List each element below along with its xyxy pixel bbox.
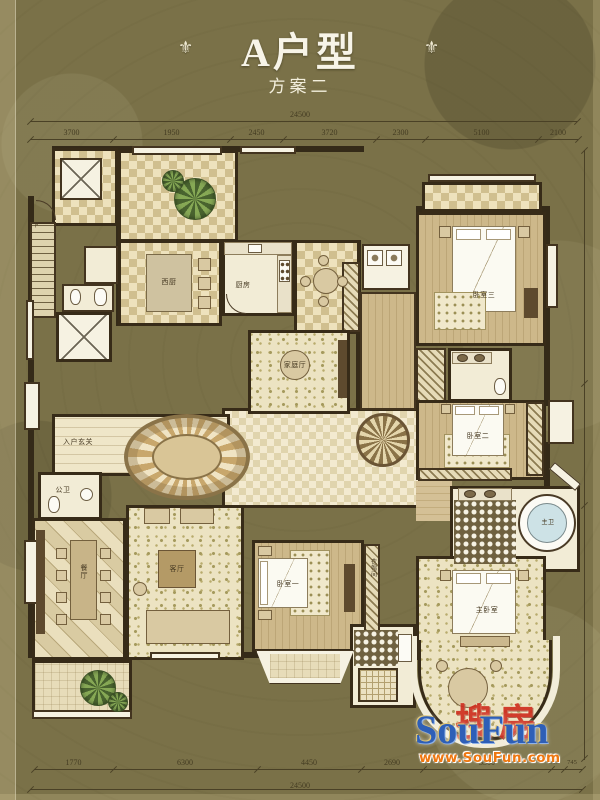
pillow [479,406,499,415]
window-strip [26,300,34,360]
nightstand [258,610,272,620]
right-border-strip [593,0,600,800]
watermark-url: www.SouFun.com [419,750,561,766]
room-label-family-room: 家庭厅 [284,361,307,369]
room-label-master-bedroom: 主卧室 [476,606,499,614]
plant-icon [162,170,184,192]
bedroom3-terrace [422,182,542,212]
bench [524,288,538,318]
master-hall [416,481,452,521]
pillow [260,561,268,605]
pillow [486,573,511,584]
dim-tick [574,118,581,125]
chair [100,548,111,559]
bath-mosaic-floor [354,630,398,666]
closet [416,348,446,402]
fleur-ornament-right-icon: ⚜ [424,38,439,58]
chair [100,570,111,581]
washer-icon [386,250,402,266]
side-table [133,582,147,596]
room-label-kitchen: 厨房 [236,281,251,289]
dim-bottom-total: 24500 [270,781,330,790]
dim-right-line [584,150,585,760]
stool [198,258,211,271]
nightstand [258,546,272,556]
watermark-en-logo: SouFun [415,706,548,753]
floor-medallion-center [152,434,222,480]
chair [100,592,111,603]
left-border-strip [0,0,16,800]
chair [490,660,502,672]
dresser [344,564,355,612]
dim-top-total: 24500 [270,110,330,119]
dim-bottom-seg: 1770 [34,758,113,767]
window-strip [150,652,220,660]
sink-icon [484,490,496,498]
floor-medallion-round [356,413,410,467]
wardrobe [526,402,544,476]
sideboard [36,530,45,634]
sink-icon [94,288,107,306]
chair [56,614,67,625]
chair [56,570,67,581]
dim-bottom-seg: 6300 [113,758,257,767]
bay-window [548,400,574,444]
sink-icon [457,354,468,362]
page-subtitle: 方案二 [0,72,600,97]
shower [358,668,398,702]
stool [198,296,211,309]
chair [100,614,111,625]
bed-bench [460,636,510,647]
stair-direction-label: 下 [33,223,40,230]
dim-top-seg: 2300 [376,128,425,137]
room-label-master-bath: 主卫 [541,520,554,527]
linen-closet [342,262,360,332]
plant-icon [108,692,128,712]
parapet [428,174,536,182]
elevator-icon [56,312,112,362]
dim-top-seg: 3700 [30,128,113,137]
dim-bottom-seg: 2690 [361,758,423,767]
nightstand [439,226,451,238]
dim-tick [579,766,586,773]
room-label-west-kitchen: 西厨 [162,278,177,286]
stool [198,277,211,290]
toilet-icon [70,289,81,305]
dim-tick [581,755,588,762]
dining-table [70,540,97,620]
sink-icon [80,488,93,501]
nightstand [505,404,515,414]
nightstand [518,226,530,238]
room-label-bedroom-3: 卧室三 [473,291,496,299]
dim-top-seg: 2450 [230,128,283,137]
window-strip [240,146,296,154]
pillow [456,573,481,584]
corridor [360,292,416,410]
chair [56,548,67,559]
sofa [146,610,230,644]
room-label-bedroom-2: 卧室二 [467,432,490,440]
dim-top-seg: 5100 [425,128,538,137]
chair [318,296,329,307]
cooktop-icon [279,260,290,282]
window-strip [132,146,222,155]
room-label-closet: 衣帽间 [369,558,376,578]
washer-icon [367,250,383,266]
pillow [455,406,475,415]
pillow [486,229,511,240]
toilet-icon [48,496,60,513]
service-room [84,246,118,284]
room-label-guest-bath: 公卫 [56,486,71,494]
dim-top-seg: 2100 [538,128,578,137]
dim-bottom-seg: 4450 [257,758,361,767]
page-title: A户型 [0,20,600,78]
sink-icon [474,354,485,362]
dim-top-seg: 1950 [113,128,230,137]
dim-tick [575,136,582,143]
bay-window [24,382,40,430]
soufun-watermark: 搜房 SouFun www.SouFun.com [415,692,575,770]
tv-cabinet [338,340,347,398]
nightstand [518,570,529,581]
armchair [180,508,214,524]
armchair [144,508,170,524]
nightstand [440,570,451,581]
bay-window [546,244,558,308]
sink-icon [464,490,476,498]
nightstand [441,404,451,414]
toilet-icon [494,378,506,395]
bay-floor [270,654,340,678]
floorplan-page: ⚜ A户型 ⚜ 方案二 24500 3700 1950 2450 3720 23… [0,0,600,800]
dim-top-seg: 3720 [283,128,376,137]
dim-top-total-line [30,121,577,122]
dim-tick [579,786,586,793]
room-label-entry-foyer: 入户玄关 [63,438,93,446]
chair [337,276,348,287]
bottom-border-strip [0,794,600,800]
chair [436,660,448,672]
elevator-icon [60,158,102,200]
room-label-dining: 餐厅 [80,564,88,579]
master-bath-mosaic [454,500,516,564]
pillow [456,229,481,240]
room-label-living: 客厅 [170,565,185,573]
bathtub-icon [398,634,412,662]
room-label-bedroom-1: 卧室一 [277,580,300,588]
breakfast-table [313,268,339,294]
chair [300,276,311,287]
master-closet [418,468,512,481]
chair [56,592,67,603]
chair [318,255,329,266]
sink-icon [248,244,262,253]
